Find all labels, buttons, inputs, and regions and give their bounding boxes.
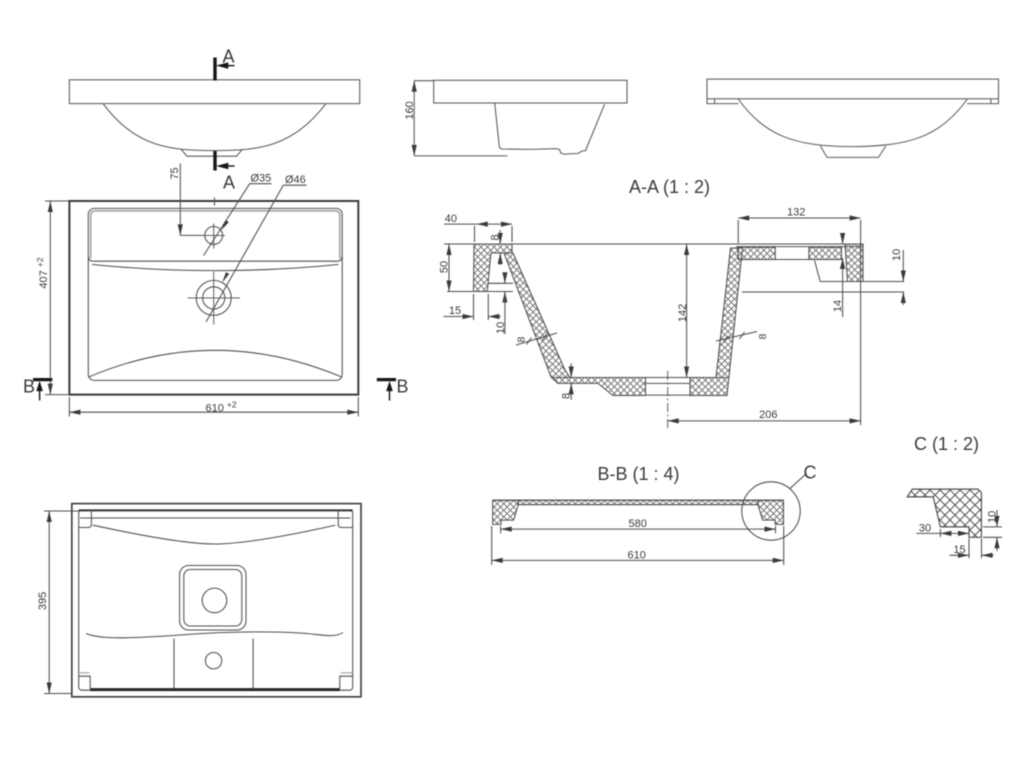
svg-text:10: 10 xyxy=(891,249,903,261)
svg-text:142: 142 xyxy=(677,304,689,322)
svg-text:610: 610 xyxy=(628,549,646,561)
svg-text:B-B (1 : 4): B-B (1 : 4) xyxy=(598,464,680,484)
svg-text:Ø46: Ø46 xyxy=(285,174,306,186)
svg-text:Ø35: Ø35 xyxy=(251,173,272,185)
svg-text:75: 75 xyxy=(169,167,181,179)
svg-text:8: 8 xyxy=(516,337,528,343)
svg-text:407 +2: 407 +2 xyxy=(35,257,50,288)
svg-text:10: 10 xyxy=(987,511,999,523)
svg-text:30: 30 xyxy=(919,522,931,534)
svg-text:206: 206 xyxy=(759,409,777,421)
svg-text:8: 8 xyxy=(757,334,769,340)
svg-text:15: 15 xyxy=(953,544,965,556)
svg-text:C: C xyxy=(804,463,817,483)
svg-text:8: 8 xyxy=(489,234,501,240)
svg-text:C (1 : 2): C (1 : 2) xyxy=(914,434,979,454)
svg-text:A: A xyxy=(223,173,235,193)
svg-text:A-A (1 : 2): A-A (1 : 2) xyxy=(629,177,710,197)
svg-text:50: 50 xyxy=(438,261,450,273)
svg-text:B: B xyxy=(23,377,35,397)
svg-text:14: 14 xyxy=(832,300,844,312)
svg-text:40: 40 xyxy=(445,213,457,225)
svg-text:160: 160 xyxy=(404,101,416,119)
svg-text:10: 10 xyxy=(495,322,507,334)
svg-text:132: 132 xyxy=(787,207,805,219)
svg-text:A: A xyxy=(223,47,235,67)
svg-text:395: 395 xyxy=(37,592,49,610)
svg-text:B: B xyxy=(397,377,409,397)
svg-text:8: 8 xyxy=(561,393,573,399)
svg-text:15: 15 xyxy=(449,305,461,317)
svg-text:580: 580 xyxy=(629,518,647,530)
